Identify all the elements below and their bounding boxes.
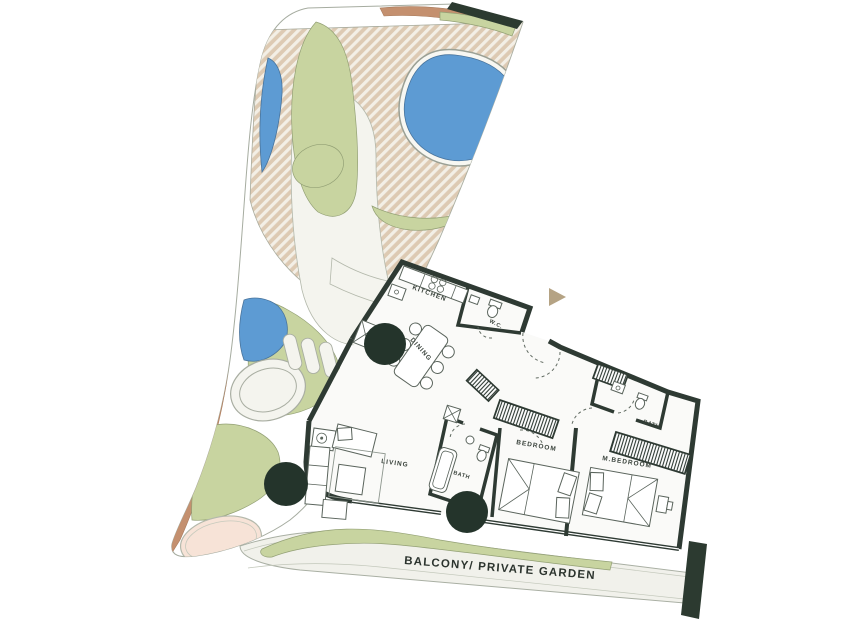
planting-lower [192,424,280,520]
tree-icon-living [264,462,308,506]
tree-icon-dining [364,323,406,365]
peach-patio [176,509,266,573]
entrance-arrow [549,288,566,306]
floorplan-canvas: KITCHEN W.C. DINING LIVING BATH BEDROOM … [0,0,853,619]
bath-sink-icon [466,436,474,444]
floorplan-drawing: KITCHEN W.C. DINING LIVING BATH BEDROOM … [0,0,853,619]
tree-icon-bath [446,491,488,533]
balcony-end-wall [681,541,707,619]
pond [404,55,516,161]
coffee-table [335,464,365,494]
